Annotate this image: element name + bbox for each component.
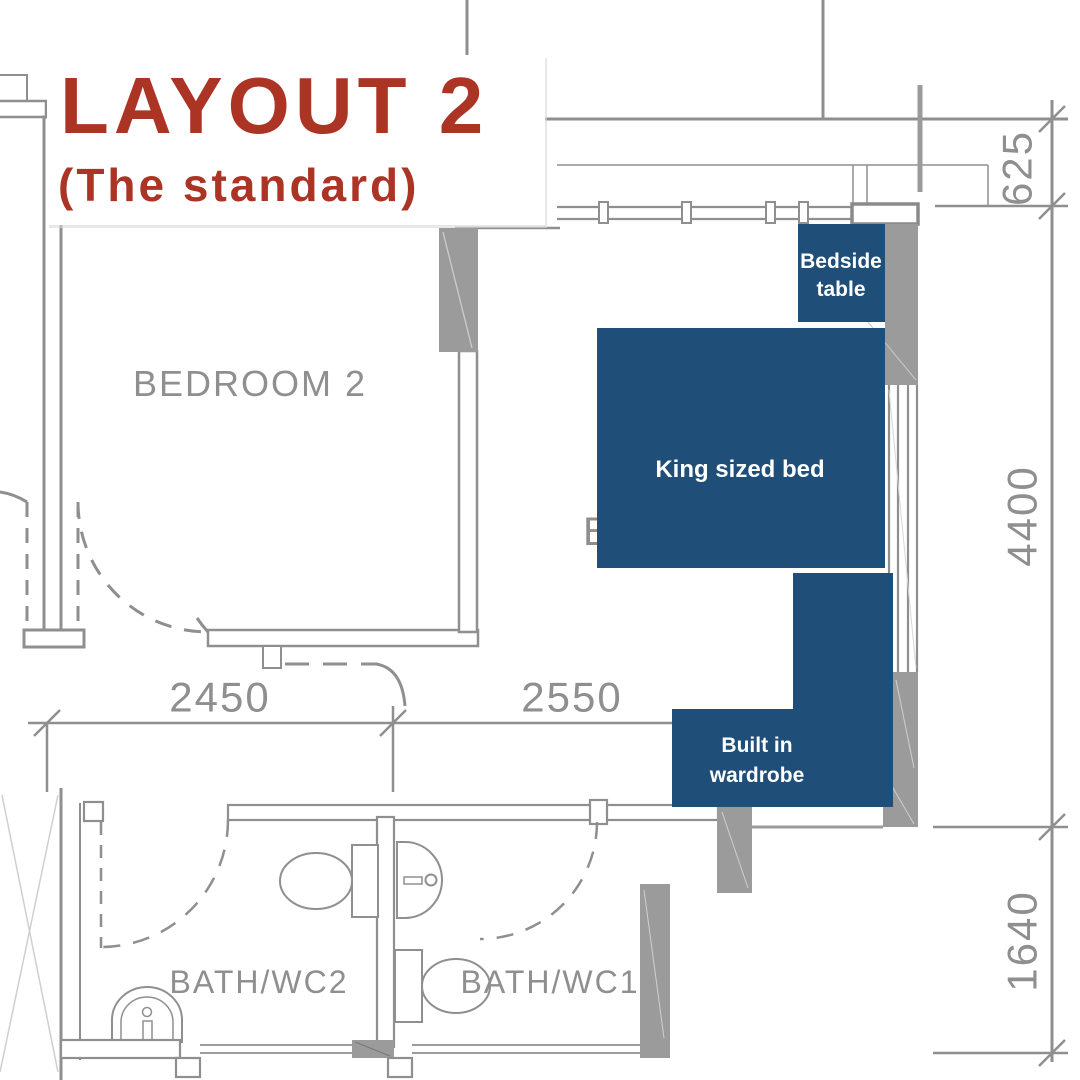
dim-bedroom1-width: 2550 [521, 674, 622, 721]
top-window-band [557, 202, 918, 224]
wardrobe-label-line1: Built in [721, 734, 792, 757]
floorplan-drawing: 2450 2550 625 4400 1640 BEDROOM 2 BATH/W… [0, 0, 1080, 1080]
title-card: LAYOUT 2 (The standard) [47, 55, 547, 228]
dim-bedroom-depth: 4400 [999, 465, 1046, 566]
bathroom-top-wall [84, 800, 718, 824]
layout-title: LAYOUT 2 [60, 61, 488, 150]
wardrobe-label-line2: wardrobe [709, 764, 805, 787]
bedroom2-door-swing [0, 492, 208, 632]
bottom-wall-band [61, 1040, 670, 1077]
left-shaft [0, 788, 80, 1080]
dim-bedroom2-width: 2450 [169, 674, 270, 721]
king-bed-label: King sized bed [655, 456, 824, 483]
layout-subtitle: (The standard) [58, 159, 419, 211]
dim-bath-depth: 1640 [999, 890, 1046, 991]
bathwc2-label: BATH/WC2 [170, 964, 349, 1000]
bedside-table-box [798, 224, 885, 322]
bedroom2-label: BEDROOM 2 [133, 363, 367, 404]
hallway-door [285, 664, 405, 706]
wall-block-center [439, 228, 478, 352]
floorplan-page: 2450 2550 625 4400 1640 BEDROOM 2 BATH/W… [0, 0, 1080, 1080]
bathwc1-label: BATH/WC1 [461, 964, 640, 1000]
bedside-table-label-line2: table [816, 278, 865, 301]
top-left-wall [0, 75, 46, 117]
bedside-table-label-line1: Bedside [800, 250, 882, 273]
toilet-icon-bathwc2 [280, 845, 378, 917]
balcony-structure [467, 0, 1068, 205]
sink-icon-bathwc1 [397, 842, 442, 918]
furniture-overlays: Bedside table King sized bed Built in wa… [597, 224, 893, 807]
bedroom2-walls [208, 228, 560, 668]
bathroom-inner-walls [377, 805, 752, 1047]
dim-balcony-depth: 625 [994, 130, 1041, 206]
king-bed-box [597, 328, 885, 568]
